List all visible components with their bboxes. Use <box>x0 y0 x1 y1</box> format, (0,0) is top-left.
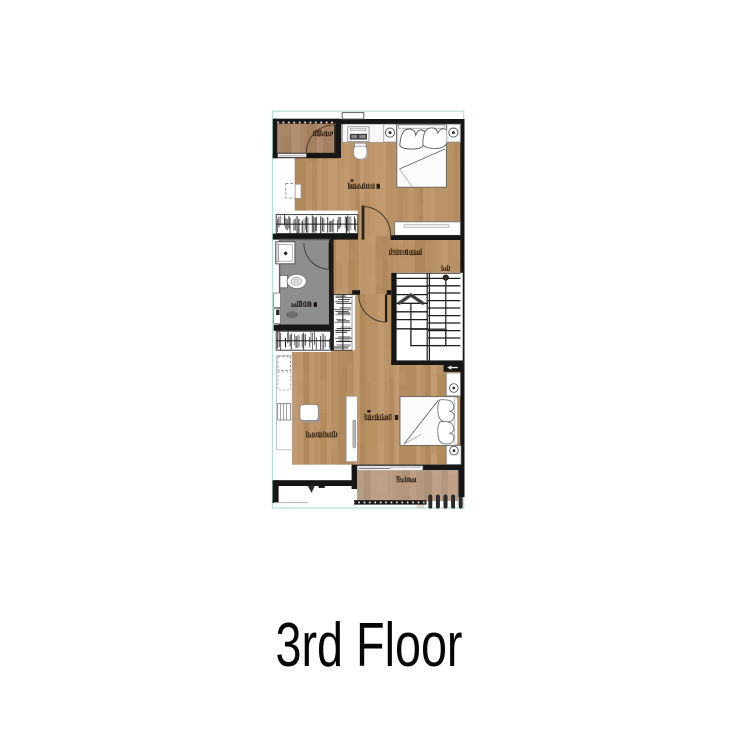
svg-text:3rd Floor: 3rd Floor <box>276 611 463 680</box>
